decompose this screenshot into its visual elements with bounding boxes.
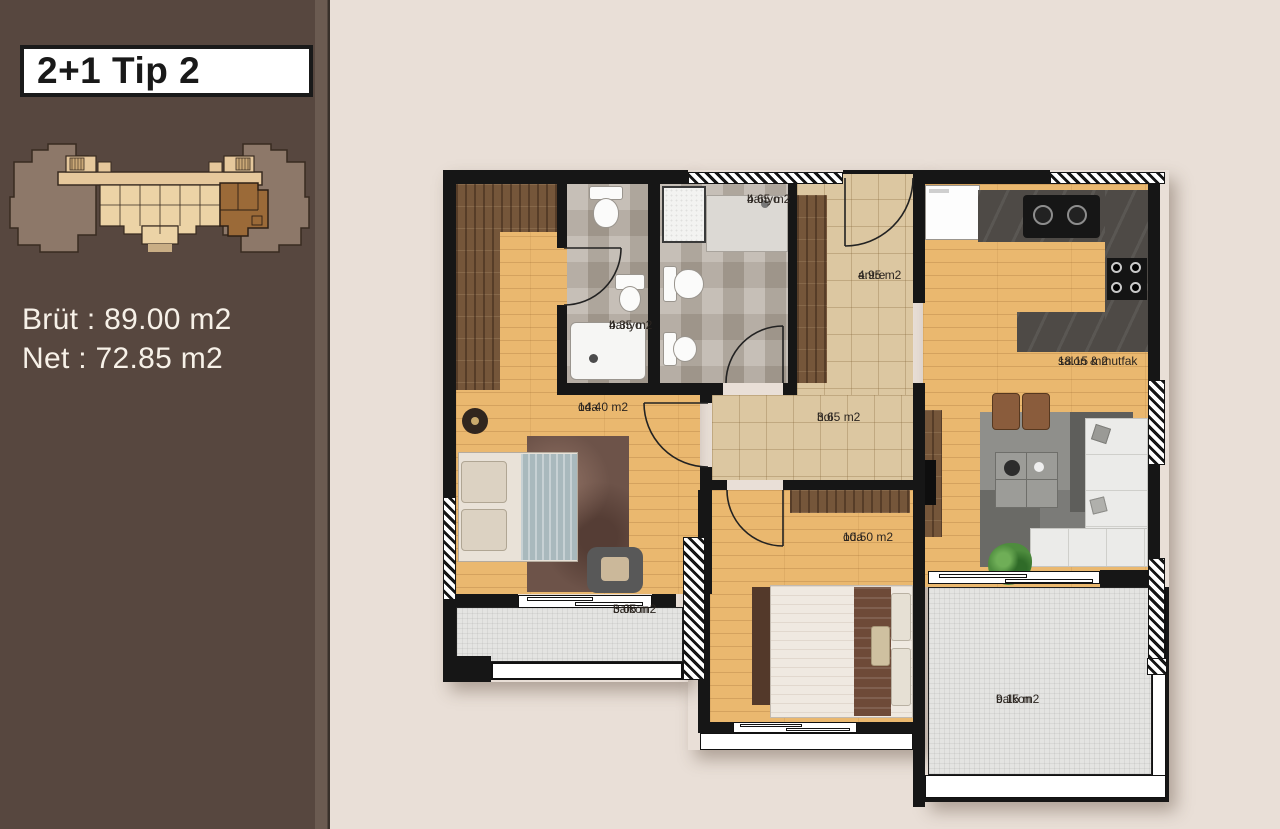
plan-type-title-box: 2+1 Tip 2 [20,45,313,97]
brochure-page: 2+1 Tip 2 [0,0,1280,829]
door-banyo-435 [564,248,621,305]
key-highlight-balcony [252,216,262,225]
door-oda-1440 [644,403,708,467]
area-stats: Brüt : 89.00 m2 Net : 72.85 m2 [22,300,232,378]
key-center-step [148,244,172,252]
door-banyo-465 [726,326,783,383]
floor-plan: banyo4.65 m2 banyo4.35 m2 antre4.95 m2 h… [443,168,1170,805]
building-key-plan [0,130,330,282]
gross-area-text: Brüt : 89.00 m2 [22,300,232,339]
plan-type-title: 2+1 Tip 2 [24,50,200,92]
door-swings [443,168,1170,805]
key-block-left-small [98,162,111,172]
sidebar: 2+1 Tip 2 [0,0,330,829]
door-entrance [845,178,913,246]
door-oda-1050 [727,490,783,546]
net-area-text: Net : 72.85 m2 [22,339,232,378]
key-block-right-small [209,162,222,172]
